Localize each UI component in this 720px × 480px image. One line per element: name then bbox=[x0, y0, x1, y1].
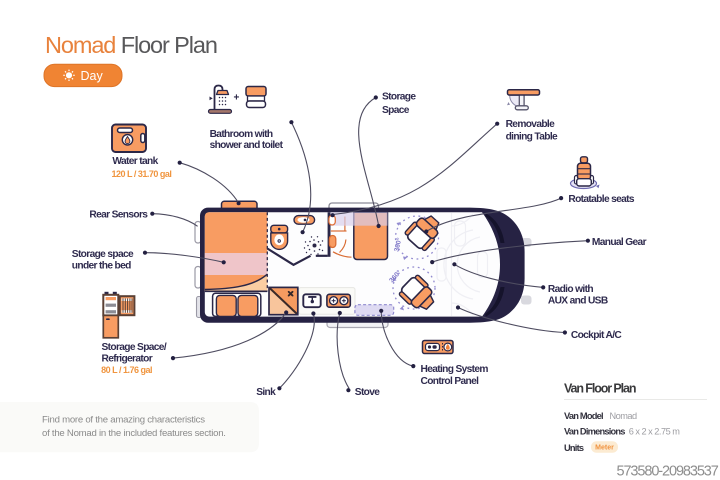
svg-text:Meter: Meter bbox=[595, 444, 614, 451]
svg-text:120 L / 31.70 gal: 120 L / 31.70 gal bbox=[112, 169, 172, 179]
svg-text:Nomad Floor Plan: Nomad Floor Plan bbox=[45, 32, 217, 58]
svg-text:Manual Gear: Manual Gear bbox=[592, 237, 647, 248]
svg-text:Storage space: Storage space bbox=[72, 249, 134, 260]
svg-text:Find more of the amazing chara: Find more of the amazing characteristics bbox=[42, 414, 205, 425]
svg-text:of the Nomad in the included f: of the Nomad in the included features se… bbox=[42, 428, 226, 439]
svg-text:Rear Sensors: Rear Sensors bbox=[89, 209, 148, 220]
svg-text:Space: Space bbox=[382, 105, 410, 116]
svg-text:Radio with: Radio with bbox=[548, 284, 593, 295]
svg-text:Storage Space/: Storage Space/ bbox=[102, 342, 167, 353]
svg-text:+: + bbox=[234, 93, 240, 104]
svg-text:Heating System: Heating System bbox=[421, 364, 489, 375]
svg-text:Bathroom with: Bathroom with bbox=[210, 129, 273, 140]
svg-text:Control Panel: Control Panel bbox=[421, 376, 480, 387]
svg-text:Stove: Stove bbox=[355, 387, 380, 398]
svg-text:Water tank: Water tank bbox=[112, 156, 158, 167]
svg-text:80 L / 1.76 gal: 80 L / 1.76 gal bbox=[101, 365, 152, 375]
svg-text:Nomad: Nomad bbox=[610, 411, 638, 421]
svg-text:6 x 2 x 2.75 m: 6 x 2 x 2.75 m bbox=[629, 427, 681, 437]
svg-text:AUX and USB: AUX and USB bbox=[548, 296, 608, 307]
svg-text:Day: Day bbox=[81, 69, 104, 83]
svg-text:shower and toilet: shower and toilet bbox=[210, 140, 284, 151]
svg-text:under the bed: under the bed bbox=[72, 261, 131, 272]
svg-text:573580-20983537: 573580-20983537 bbox=[617, 464, 719, 480]
svg-text:Refrigerator: Refrigerator bbox=[102, 354, 153, 365]
svg-text:Van Floor Plan: Van Floor Plan bbox=[564, 382, 636, 396]
svg-text:Cockpit A/C: Cockpit A/C bbox=[571, 330, 622, 341]
svg-text:Van Dimensions: Van Dimensions bbox=[564, 427, 625, 437]
svg-text:Storage: Storage bbox=[382, 92, 416, 103]
svg-text:Sink: Sink bbox=[256, 387, 276, 398]
svg-text:dining Table: dining Table bbox=[506, 132, 558, 143]
svg-text:Removable: Removable bbox=[506, 119, 555, 130]
svg-text:Units: Units bbox=[564, 443, 584, 453]
svg-text:Van Model: Van Model bbox=[564, 411, 603, 421]
svg-text:Rotatable seats: Rotatable seats bbox=[568, 194, 635, 205]
